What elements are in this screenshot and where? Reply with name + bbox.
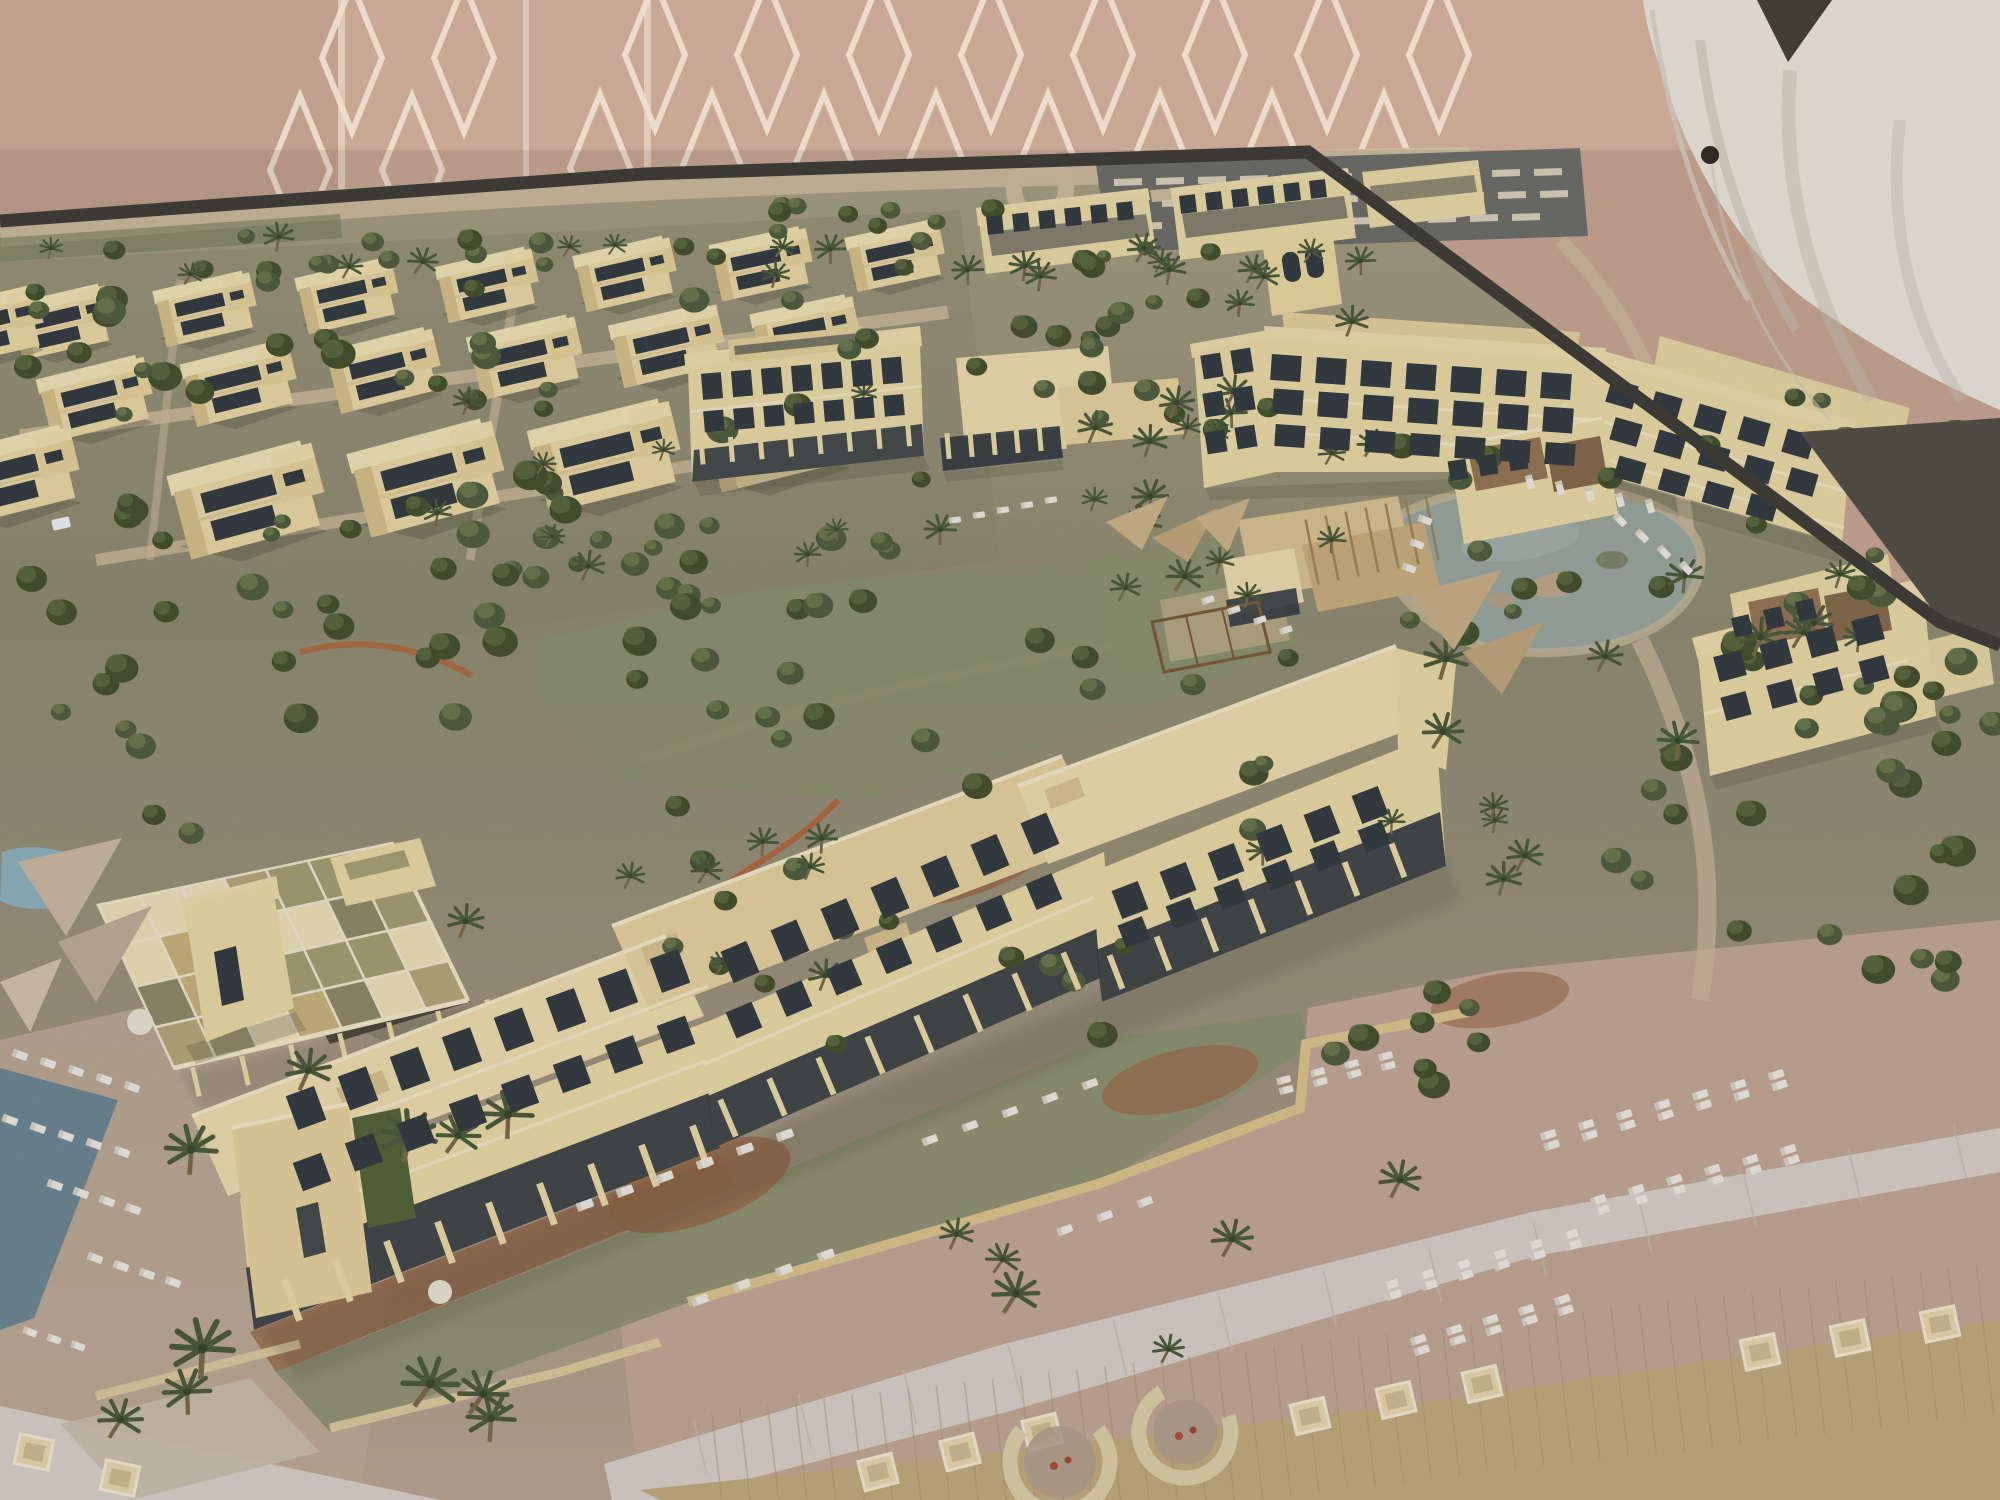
photo-architectural-model: [0, 0, 2000, 1500]
scene-svg: [0, 0, 2000, 1500]
photo-grain: [0, 150, 2000, 1500]
jacket-button: [1701, 146, 1719, 164]
